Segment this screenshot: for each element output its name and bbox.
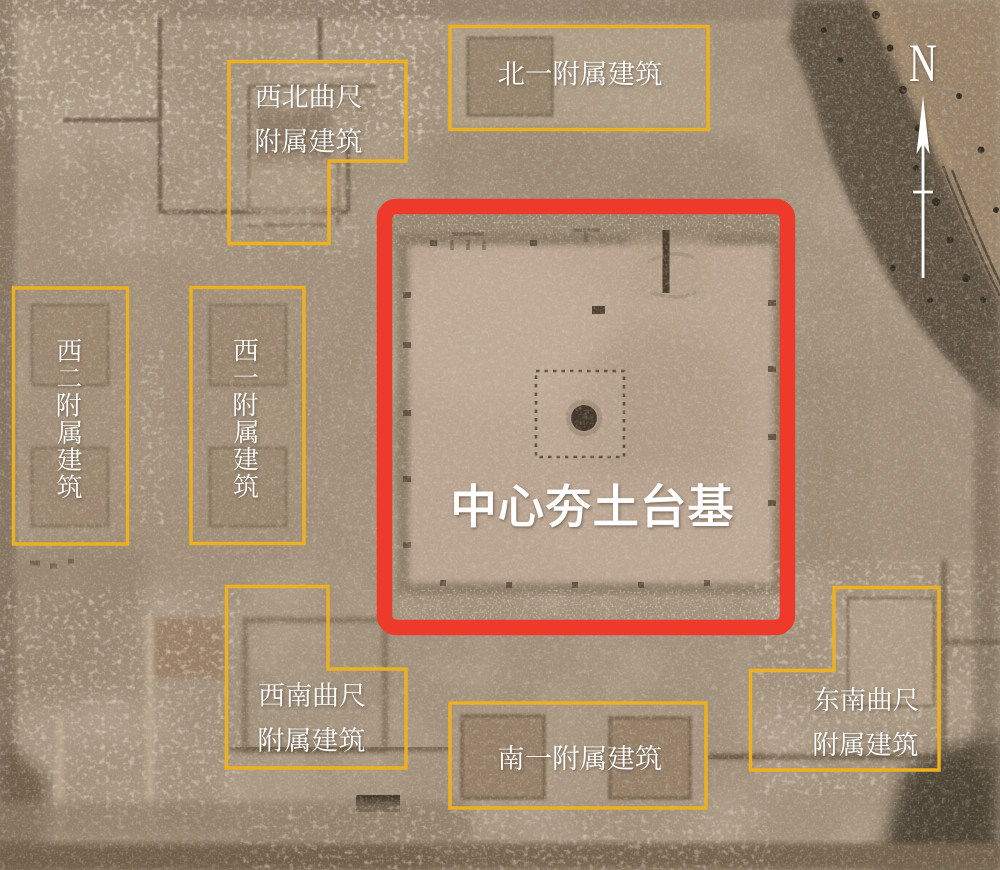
svg-text:N: N <box>909 33 937 93</box>
